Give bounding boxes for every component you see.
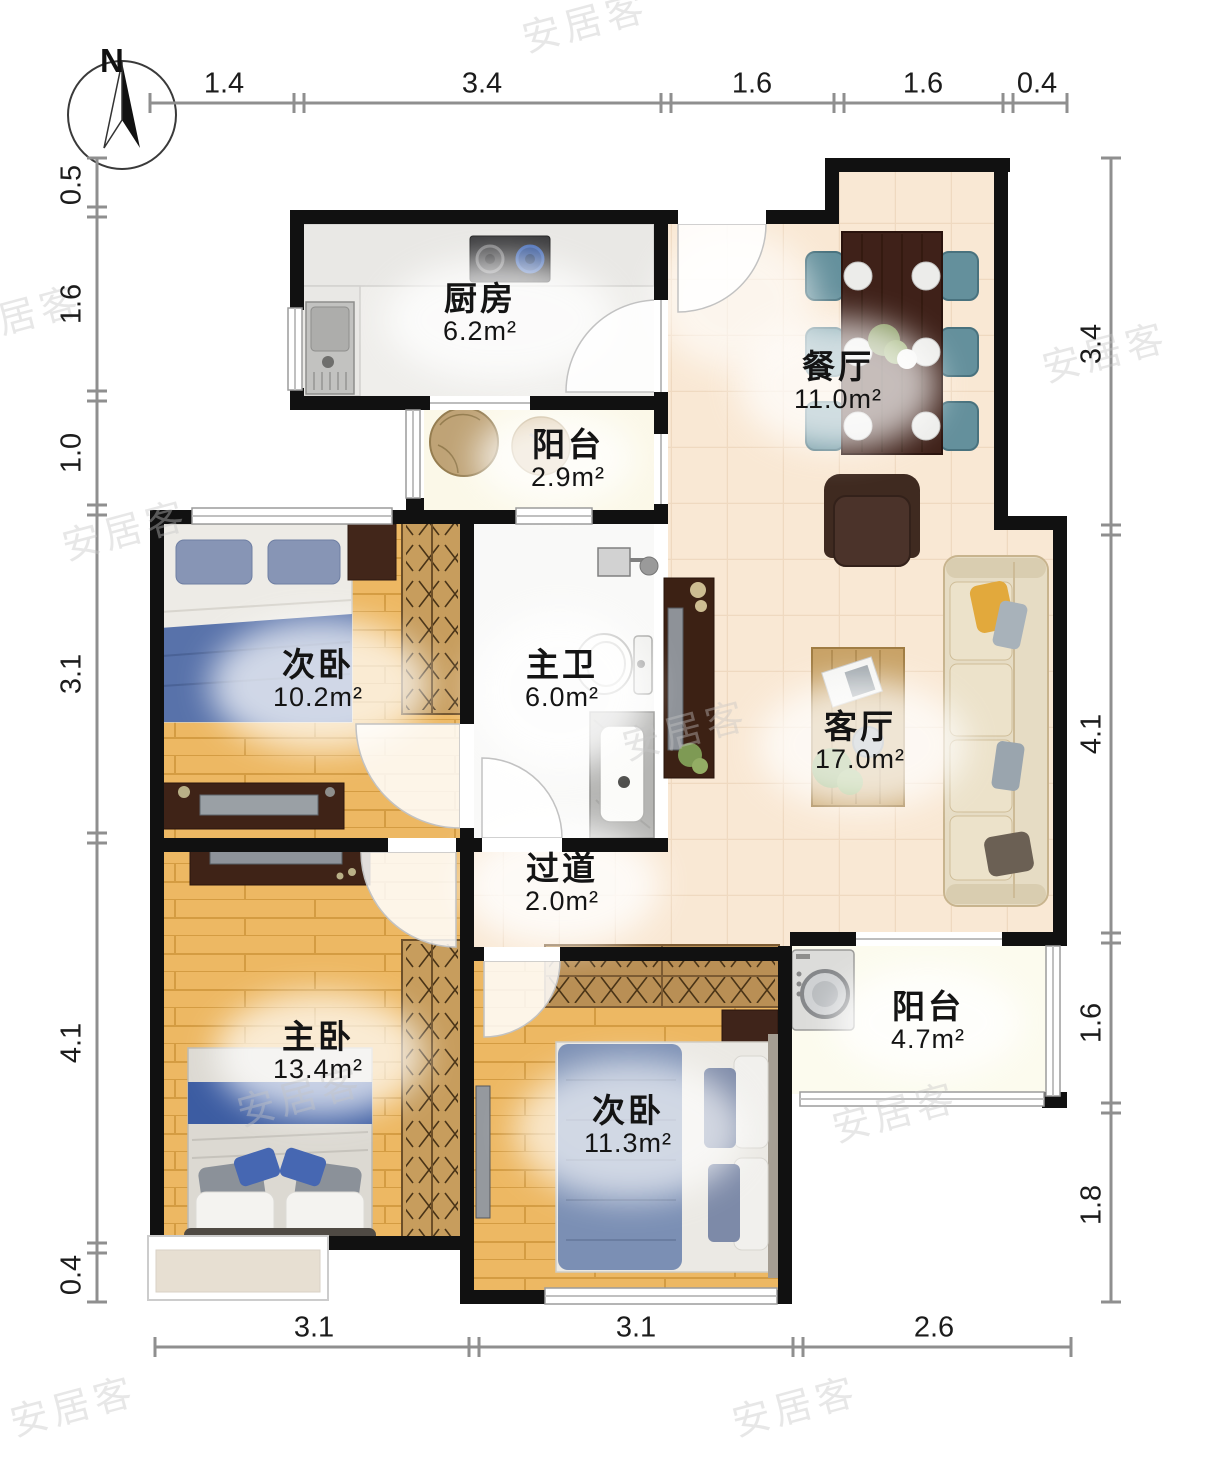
room-label-kitchen: 厨房 6.2m²: [443, 282, 517, 347]
dim-top-5: 0.4: [1017, 68, 1057, 101]
room-label-balcony-south: 阳台 4.7m²: [891, 990, 965, 1055]
room-label-dining: 餐厅 11.0m²: [794, 350, 882, 415]
kitchen-sink: [306, 302, 354, 394]
floorplan-canvas: 安居客 安居客 安居客 安居客 安居客 安居客 安居客 安居客 安居客 厨房 6…: [0, 0, 1209, 1459]
room-area: 6.0m²: [525, 682, 599, 713]
dim-top-4: 1.6: [903, 68, 943, 101]
room-name: 次卧: [584, 1094, 672, 1128]
room-name: 过道: [525, 852, 599, 886]
room-area: 6.2m²: [443, 316, 517, 347]
room-label-master: 主卧 13.4m²: [273, 1020, 363, 1085]
floorplan-drawing: [0, 0, 1209, 1459]
room-label-bathroom: 主卫 6.0m²: [525, 648, 599, 713]
dim-left-1: 0.5: [56, 165, 89, 205]
room-name: 阳台: [531, 428, 605, 462]
room-area: 4.7m²: [891, 1024, 965, 1055]
dim-left-5: 4.1: [56, 1023, 89, 1063]
dim-left-6: 0.4: [56, 1255, 89, 1295]
room-name: 客厅: [815, 710, 905, 744]
dim-right-2: 4.1: [1076, 714, 1109, 754]
dim-bottom-1: 3.1: [294, 1312, 334, 1345]
master-bay-window: [148, 1236, 328, 1300]
kitchen-window: [288, 308, 302, 390]
bedroom-n-window: [192, 508, 392, 524]
room-name: 次卧: [273, 648, 363, 682]
dim-left-4: 3.1: [56, 654, 89, 694]
room-label-balcony-north: 阳台 2.9m²: [531, 428, 605, 493]
room-area: 11.0m²: [794, 384, 882, 415]
room-area: 10.2m²: [273, 682, 363, 713]
dim-bottom-2: 3.1: [616, 1312, 656, 1345]
dim-top-3: 1.6: [732, 68, 772, 101]
dim-left-2: 1.6: [56, 284, 89, 324]
room-area: 2.0m²: [525, 886, 599, 917]
balcony-south-window-right: [1046, 946, 1060, 1096]
tv: [476, 1086, 490, 1218]
room-label-bedroom-s: 次卧 11.3m²: [584, 1094, 672, 1159]
nightstand: [348, 524, 396, 580]
room-area: 17.0m²: [815, 744, 905, 775]
dim-bottom-3: 2.6: [914, 1312, 954, 1345]
room-name: 餐厅: [794, 350, 882, 384]
dim-right-4: 1.8: [1076, 1185, 1109, 1225]
room-area: 13.4m²: [273, 1054, 363, 1085]
room-name: 主卫: [525, 648, 599, 682]
room-area: 2.9m²: [531, 462, 605, 493]
north-label: N: [100, 42, 124, 80]
ruler-left: [87, 158, 107, 1302]
room-label-bedroom-n: 次卧 10.2m²: [273, 648, 363, 713]
dim-right-3: 1.6: [1076, 1003, 1109, 1043]
room-name: 阳台: [891, 990, 965, 1024]
dim-top-2: 3.4: [462, 68, 502, 101]
room-name: 厨房: [443, 282, 517, 316]
room-label-living: 客厅 17.0m²: [815, 710, 905, 775]
bathroom-window: [516, 508, 592, 524]
dim-right-1: 3.4: [1076, 324, 1109, 364]
room-name: 主卧: [273, 1020, 363, 1054]
dim-top-1: 1.4: [204, 68, 244, 101]
room-area: 11.3m²: [584, 1128, 672, 1159]
dim-left-3: 1.0: [56, 433, 89, 473]
balcony-north-window: [406, 410, 420, 498]
room-label-hallway: 过道 2.0m²: [525, 852, 599, 917]
armchair: [824, 474, 920, 566]
bedroom-s-window: [545, 1288, 777, 1304]
